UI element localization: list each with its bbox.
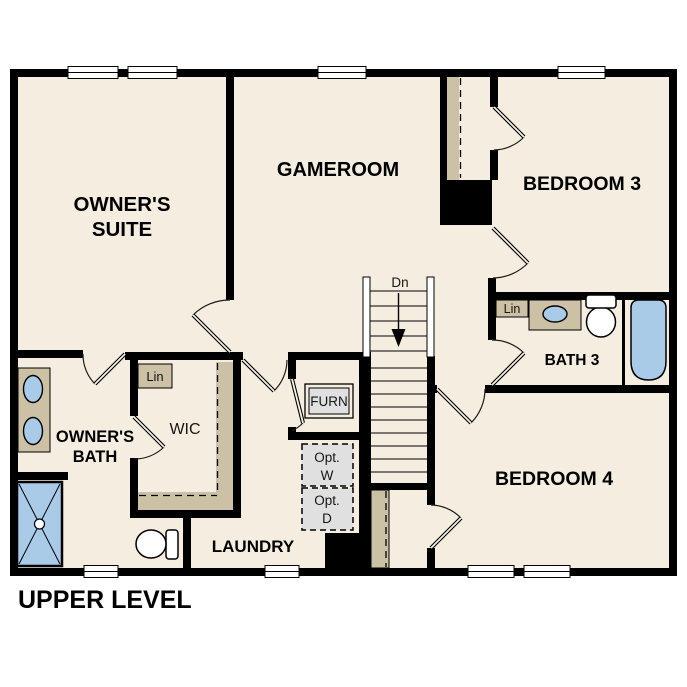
bathtub-icon xyxy=(631,300,666,380)
opt-dryer-label-1: Opt. xyxy=(314,493,340,508)
window xyxy=(524,566,570,578)
bath3-vanity xyxy=(529,300,581,330)
sink-icon xyxy=(24,418,43,445)
wall-chase-block xyxy=(440,180,492,225)
stair-rail-right xyxy=(427,277,434,357)
floor-plan-svg: OWNER'S SUITE GAMEROOM BEDROOM 3 BEDROOM… xyxy=(0,0,687,687)
floor-plan: OWNER'S SUITE GAMEROOM BEDROOM 3 BEDROOM… xyxy=(0,0,687,687)
wall-owners-suite-right xyxy=(226,69,234,300)
opt-washer-label-2: W xyxy=(321,468,334,483)
linen-wic-label: Lin xyxy=(146,369,163,384)
opt-washer-label-1: Opt. xyxy=(314,450,340,465)
wic-label: WIC xyxy=(169,421,200,438)
owners-bath-label-2: BATH xyxy=(73,448,118,466)
stair-rail-left xyxy=(363,277,370,357)
window xyxy=(265,566,299,578)
furnace-label: FURN xyxy=(310,394,348,409)
window xyxy=(558,67,605,79)
window xyxy=(318,67,366,79)
owners-bath-vanity xyxy=(18,368,50,452)
sink-icon xyxy=(543,306,567,322)
wall-laundry-block xyxy=(325,533,371,568)
wall-center-vertical xyxy=(359,360,371,533)
laundry-label: LAUNDRY xyxy=(212,537,295,556)
shower-icon xyxy=(17,482,62,566)
plan-title: UPPER LEVEL xyxy=(18,586,192,614)
opt-dryer-label-2: D xyxy=(322,511,332,526)
owners-bath-label-1: OWNER'S xyxy=(56,428,134,446)
window xyxy=(468,566,514,578)
wall-tub-partition xyxy=(622,300,625,385)
window xyxy=(128,67,177,79)
bedroom4-label: BEDROOM 4 xyxy=(495,468,613,490)
chase xyxy=(447,77,461,180)
toilet-icon xyxy=(136,530,178,559)
sink-icon xyxy=(24,376,43,403)
linen-bath3-label: Lin xyxy=(504,302,521,316)
bedroom3-label: BEDROOM 3 xyxy=(523,173,641,195)
toilet-icon xyxy=(586,295,616,337)
window xyxy=(68,67,118,79)
window xyxy=(84,566,118,578)
stairs-down-label: Dn xyxy=(391,275,408,290)
owners-suite-label-2: SUITE xyxy=(92,218,152,241)
bath3-label: BATH 3 xyxy=(545,352,600,369)
owners-suite-label-1: OWNER'S xyxy=(73,193,170,216)
gameroom-label: GAMEROOM xyxy=(277,159,399,181)
